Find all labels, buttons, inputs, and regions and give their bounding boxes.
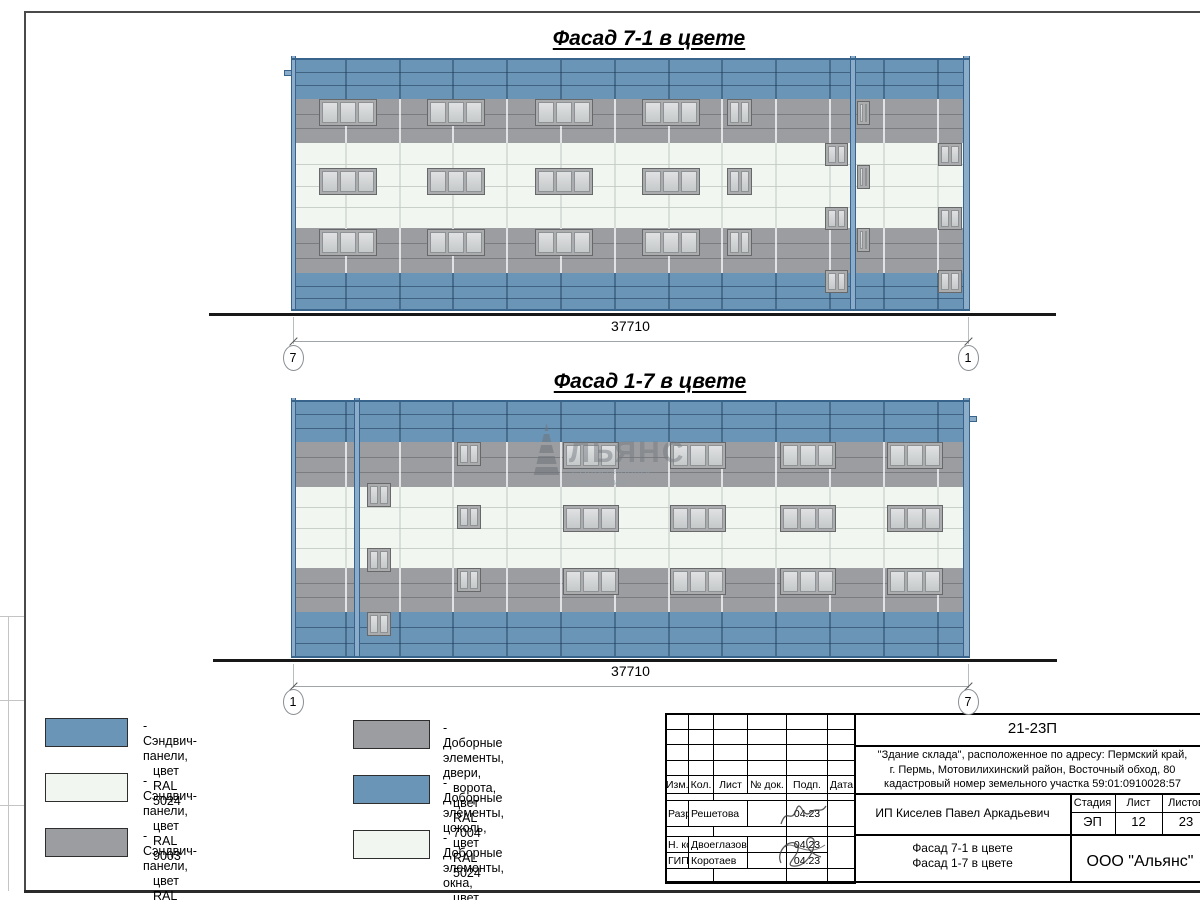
window	[887, 568, 943, 595]
sheet-titles: Фасад 7-1 в цвете Фасад 1-7 в цвете	[855, 841, 1070, 871]
legend-label-line: - Сэндвич-панели,	[143, 829, 197, 874]
window	[319, 99, 377, 126]
ground-line	[213, 659, 1057, 662]
panel-joint	[775, 99, 777, 143]
col-header-podp: Подп.	[787, 776, 828, 794]
window	[535, 168, 593, 195]
window-pane	[645, 171, 661, 192]
window-pane	[583, 445, 598, 466]
panel-joint	[560, 612, 562, 658]
window-pane	[380, 551, 388, 569]
drawing-element	[780, 838, 821, 866]
dimension-line	[293, 341, 968, 342]
window	[780, 505, 836, 532]
window-pane	[370, 486, 378, 504]
flashing-tab	[969, 416, 977, 422]
drawing-sheet: Фасад 7-1 в цвете Фасад 1-7 в цвете 3771…	[0, 0, 1200, 900]
window-pane	[430, 232, 446, 253]
panel-joint	[506, 487, 508, 568]
panel-joint	[345, 568, 347, 612]
sheet-number: 12	[1115, 814, 1162, 829]
window-pane	[951, 273, 959, 290]
window-pane	[838, 210, 846, 227]
window-pane	[566, 508, 581, 529]
window-pane	[681, 102, 697, 123]
pilaster-column	[850, 56, 856, 311]
window-pane	[574, 171, 590, 192]
window-pane	[470, 571, 478, 589]
window-pane	[941, 210, 949, 227]
panel-band-ral-5024	[291, 58, 970, 99]
panel-joint	[775, 273, 777, 311]
window-pane	[865, 104, 868, 122]
panel-joint	[399, 442, 401, 487]
window-pane	[951, 210, 959, 227]
panel-joint	[883, 568, 885, 612]
signer-name: Коротаев	[689, 853, 748, 869]
panel-joint	[399, 228, 401, 273]
panel-joint	[937, 58, 939, 99]
panel-seam	[291, 597, 970, 598]
window	[367, 612, 391, 636]
window-pane	[322, 102, 338, 123]
window-pane	[690, 571, 705, 592]
window-pane	[838, 273, 846, 290]
stamp-cell	[666, 761, 689, 776]
pilaster-column	[963, 398, 970, 658]
window-pane	[673, 445, 688, 466]
window-pane	[818, 571, 833, 592]
window-pane	[583, 508, 598, 529]
window-pane	[601, 445, 616, 466]
company-name: ООО "Альянс"	[1070, 853, 1200, 871]
drawing-element	[666, 714, 856, 730]
stamp-cell	[689, 745, 714, 761]
window	[857, 101, 870, 125]
panel-seam	[291, 414, 970, 415]
panel-joint	[721, 612, 723, 658]
panel-seam	[291, 457, 970, 458]
legend-label-line: - Доборные элементы, двери,	[443, 721, 504, 781]
stamp-cell	[689, 714, 714, 730]
panel-joint	[399, 612, 401, 658]
stamp-cell	[666, 714, 689, 730]
window-pane	[574, 102, 590, 123]
window-pane	[741, 102, 750, 123]
window	[427, 99, 485, 126]
drawing-element	[785, 845, 825, 850]
col-header-dok: № док.	[748, 776, 787, 794]
facade-7-1	[291, 58, 970, 311]
panel-joint	[345, 273, 347, 311]
panel-joint	[775, 400, 777, 442]
pilaster-column	[291, 56, 296, 311]
window-pane	[828, 210, 836, 227]
panel-joint	[883, 612, 885, 658]
panel-seam	[291, 72, 970, 73]
panel-joint	[721, 400, 723, 442]
panel-seam	[291, 286, 970, 287]
window-pane	[583, 571, 598, 592]
window-pane	[951, 146, 959, 163]
panel-joint	[829, 228, 831, 273]
panel-joint	[614, 99, 616, 143]
drawing-element	[666, 745, 856, 761]
panel-joint	[506, 58, 508, 99]
window-pane	[828, 146, 836, 163]
legend-swatch-ral-5024	[353, 775, 430, 804]
window	[938, 207, 962, 230]
panel-joint	[506, 228, 508, 273]
client-name: ИП Киселев Павел Аркадьевич	[855, 806, 1070, 820]
panel-joint	[829, 612, 831, 658]
stamp-border	[665, 881, 1200, 883]
window-pane	[380, 615, 388, 633]
panel-joint	[614, 228, 616, 273]
window-pane	[448, 232, 464, 253]
window-pane	[800, 445, 815, 466]
panel-joint	[614, 400, 616, 442]
window-pane	[800, 508, 815, 529]
window	[535, 99, 593, 126]
stamp-border	[665, 713, 667, 883]
stamp-cell	[828, 761, 856, 776]
window	[642, 168, 700, 195]
window-pane	[907, 445, 922, 466]
drawing-element: Изм. Кол. Лист № док. Подп. Дата	[666, 776, 856, 794]
facade-top-edge	[291, 58, 970, 60]
window-pane	[800, 571, 815, 592]
window-pane	[538, 102, 554, 123]
window-pane	[890, 508, 905, 529]
facade-1-7	[291, 400, 970, 658]
panel-joint	[721, 99, 723, 143]
window-pane	[783, 571, 798, 592]
panel-joint	[883, 273, 885, 311]
legend-label: - Сэндвич-панели,цвет RAL 7004	[143, 829, 197, 900]
window-pane	[322, 232, 338, 253]
window-pane	[860, 231, 863, 249]
panel-joint	[452, 400, 454, 442]
stamp-border	[665, 713, 1200, 715]
window-pane	[690, 445, 705, 466]
panel-seam	[291, 472, 970, 473]
panel-joint	[937, 612, 939, 658]
panel-joint	[560, 487, 562, 568]
stamp-cell	[787, 745, 828, 761]
window	[727, 168, 752, 195]
window-pane	[708, 508, 723, 529]
window-pane	[783, 445, 798, 466]
panel-joint	[829, 58, 831, 99]
pilaster-column	[963, 56, 970, 311]
window	[727, 99, 752, 126]
window-pane	[448, 171, 464, 192]
panel-seam	[291, 643, 970, 644]
legend-swatch-ral-7004	[353, 720, 430, 749]
window-pane	[566, 445, 581, 466]
window	[670, 568, 726, 595]
window	[367, 483, 391, 507]
panel-joint	[937, 228, 939, 273]
panel-joint	[345, 442, 347, 487]
stamp-cell	[787, 714, 828, 730]
window-pane	[818, 508, 833, 529]
panel-joint	[399, 273, 401, 311]
legend-label-line: цвет RAL 9003	[443, 891, 504, 900]
window-pane	[556, 102, 572, 123]
window	[367, 548, 391, 572]
stamp-cell	[748, 714, 787, 730]
panel-joint	[560, 400, 562, 442]
stamp-divider	[1070, 812, 1200, 813]
panel-seam	[291, 258, 970, 259]
window	[938, 270, 962, 293]
panel-band-ral-5024	[291, 273, 970, 311]
window	[319, 229, 377, 256]
window-pane	[741, 171, 750, 192]
panel-band-ral-9003	[291, 487, 970, 568]
panel-band-ral-7004	[291, 442, 970, 487]
window-pane	[340, 171, 356, 192]
axis-marker-7: 7	[283, 345, 304, 371]
stamp-cell	[748, 761, 787, 776]
col-header-list: Лист	[714, 776, 748, 794]
panel-joint	[506, 400, 508, 442]
window-pane	[358, 171, 374, 192]
window-pane	[941, 146, 949, 163]
project-code: 21-23П	[855, 720, 1200, 737]
stamp-divider	[855, 834, 1200, 836]
stamp-cell	[748, 745, 787, 761]
panel-joint	[829, 99, 831, 143]
window	[427, 168, 485, 195]
panel-joint	[399, 487, 401, 568]
panel-seam	[291, 583, 970, 584]
stamp-cell	[714, 794, 787, 801]
window-pane	[681, 232, 697, 253]
panel-joint	[452, 58, 454, 99]
window-pane	[448, 102, 464, 123]
panel-joint	[506, 143, 508, 228]
sheet-title-line: Фасад 7-1 в цвете	[855, 841, 1070, 856]
sheets-column-header: Листов	[1162, 797, 1200, 809]
window-pane	[466, 171, 482, 192]
sheet-title-line: Фасад 1-7 в цвете	[855, 856, 1070, 871]
window-pane	[470, 508, 478, 526]
panel-joint	[560, 442, 562, 487]
panel-joint	[614, 58, 616, 99]
panel-seam	[291, 548, 970, 549]
panel-joint	[721, 143, 723, 228]
panel-joint	[452, 442, 454, 487]
stamp-cell	[714, 714, 748, 730]
legend-swatch-ral-5024	[45, 718, 128, 747]
window	[642, 229, 700, 256]
panel-joint	[399, 58, 401, 99]
project-description-line: г. Пермь, Мотовилихинский район, Восточн…	[855, 763, 1200, 778]
window	[780, 442, 836, 469]
panel-joint	[775, 568, 777, 612]
panel-joint	[345, 612, 347, 658]
panel-joint	[399, 568, 401, 612]
window	[887, 505, 943, 532]
stamp-divider	[855, 793, 1200, 795]
signer-role: ГИП	[666, 853, 689, 869]
signer-name: Решетова	[689, 801, 748, 827]
facade-bottom-edge	[291, 309, 970, 311]
panel-joint	[345, 400, 347, 442]
window-pane	[380, 486, 388, 504]
panel-joint	[775, 143, 777, 228]
panel-seam	[291, 85, 970, 86]
legend-label-line: - Сэндвич-панели,	[143, 719, 197, 764]
window-pane	[601, 571, 616, 592]
stamp-cell	[714, 730, 748, 745]
stamp-cell	[828, 745, 856, 761]
panel-joint	[345, 487, 347, 568]
window-pane	[663, 102, 679, 123]
window-pane	[538, 171, 554, 192]
panel-joint	[452, 273, 454, 311]
drawing-element	[666, 761, 856, 776]
window-pane	[890, 445, 905, 466]
panel-joint	[506, 273, 508, 311]
window-pane	[556, 232, 572, 253]
panel-joint	[721, 273, 723, 311]
panel-joint	[883, 143, 885, 228]
stamp-cell	[787, 761, 828, 776]
dimension-label: 37710	[611, 663, 650, 679]
panel-joint	[883, 442, 885, 487]
window-pane	[673, 508, 688, 529]
window-pane	[860, 104, 863, 122]
title-block: Изм. Кол. Лист № док. Подп. Дата Разраб.…	[665, 713, 1200, 883]
window	[319, 168, 377, 195]
drawing-element	[666, 730, 856, 745]
axis-marker-1: 1	[283, 689, 304, 715]
dimension-label: 37710	[611, 318, 650, 334]
stamp-cell	[666, 827, 714, 837]
window-pane	[601, 508, 616, 529]
panel-seam	[291, 507, 970, 508]
window-pane	[460, 508, 468, 526]
window-pane	[370, 551, 378, 569]
window-pane	[574, 232, 590, 253]
window	[457, 442, 481, 466]
panel-joint	[345, 58, 347, 99]
panel-joint	[668, 612, 670, 658]
flashing-tab	[284, 70, 292, 76]
stamp-cell	[666, 794, 714, 801]
axis-marker-7: 7	[958, 689, 979, 715]
window	[563, 568, 619, 595]
window	[670, 442, 726, 469]
panel-joint	[452, 612, 454, 658]
panel-joint	[883, 400, 885, 442]
window-pane	[783, 508, 798, 529]
window	[825, 143, 848, 166]
panel-joint	[883, 99, 885, 143]
stamp-cell	[828, 827, 856, 837]
panel-seam	[291, 207, 970, 208]
stamp-cell	[748, 730, 787, 745]
panel-joint	[668, 273, 670, 311]
window-pane	[818, 445, 833, 466]
panel-seam	[291, 528, 970, 529]
facade-top-edge	[291, 400, 970, 402]
window-pane	[925, 445, 940, 466]
panel-joint	[937, 99, 939, 143]
window-pane	[460, 445, 468, 463]
window-pane	[370, 615, 378, 633]
project-description-line: "Здание склада", расположенное по адресу…	[855, 748, 1200, 763]
panel-joint	[937, 400, 939, 442]
window-pane	[925, 571, 940, 592]
panel-joint	[668, 400, 670, 442]
dimension-line	[293, 686, 968, 687]
window-pane	[645, 102, 661, 123]
window-pane	[470, 445, 478, 463]
window-pane	[681, 171, 697, 192]
stamp-cell	[689, 730, 714, 745]
panel-band-ral-5024	[291, 400, 970, 442]
panel-joint	[775, 58, 777, 99]
panel-joint	[775, 612, 777, 658]
sheet-column-header: Лист	[1115, 797, 1162, 809]
window-pane	[322, 171, 338, 192]
panel-band-ral-5024	[291, 612, 970, 658]
col-header-data: Дата	[828, 776, 856, 794]
window-pane	[690, 508, 705, 529]
panel-joint	[883, 228, 885, 273]
project-description: "Здание склада", расположенное по адресу…	[855, 748, 1200, 792]
panel-band-ral-7004	[291, 568, 970, 612]
window-pane	[340, 232, 356, 253]
panel-joint	[560, 58, 562, 99]
window-pane	[466, 232, 482, 253]
legend-swatch-ral-9003	[45, 773, 128, 802]
panel-joint	[506, 612, 508, 658]
stamp-cell	[828, 714, 856, 730]
window-pane	[925, 508, 940, 529]
signer-role: Разраб.	[666, 801, 689, 827]
window	[457, 568, 481, 592]
panel-joint	[883, 58, 885, 99]
col-header-kol: Кол.	[689, 776, 714, 794]
legend-label-line: - Доборные элементы, цоколь,	[443, 776, 504, 836]
panel-seam	[291, 428, 970, 429]
window	[727, 229, 752, 256]
window-pane	[466, 102, 482, 123]
window-pane	[730, 102, 739, 123]
panel-joint	[399, 99, 401, 143]
legend-label-line: - Доборные элементы, окна,	[443, 831, 504, 891]
panel-joint	[506, 442, 508, 487]
window-pane	[730, 171, 739, 192]
panel-joint	[452, 568, 454, 612]
window	[825, 270, 848, 293]
window-pane	[907, 571, 922, 592]
sheets-total: 23	[1162, 814, 1200, 829]
window-pane	[663, 232, 679, 253]
window	[938, 143, 962, 166]
panel-joint	[829, 400, 831, 442]
legend-swatch-ral-9003	[353, 830, 430, 859]
window	[857, 228, 870, 252]
facade-bottom-edge	[291, 656, 970, 658]
stamp-divider	[855, 745, 1200, 747]
